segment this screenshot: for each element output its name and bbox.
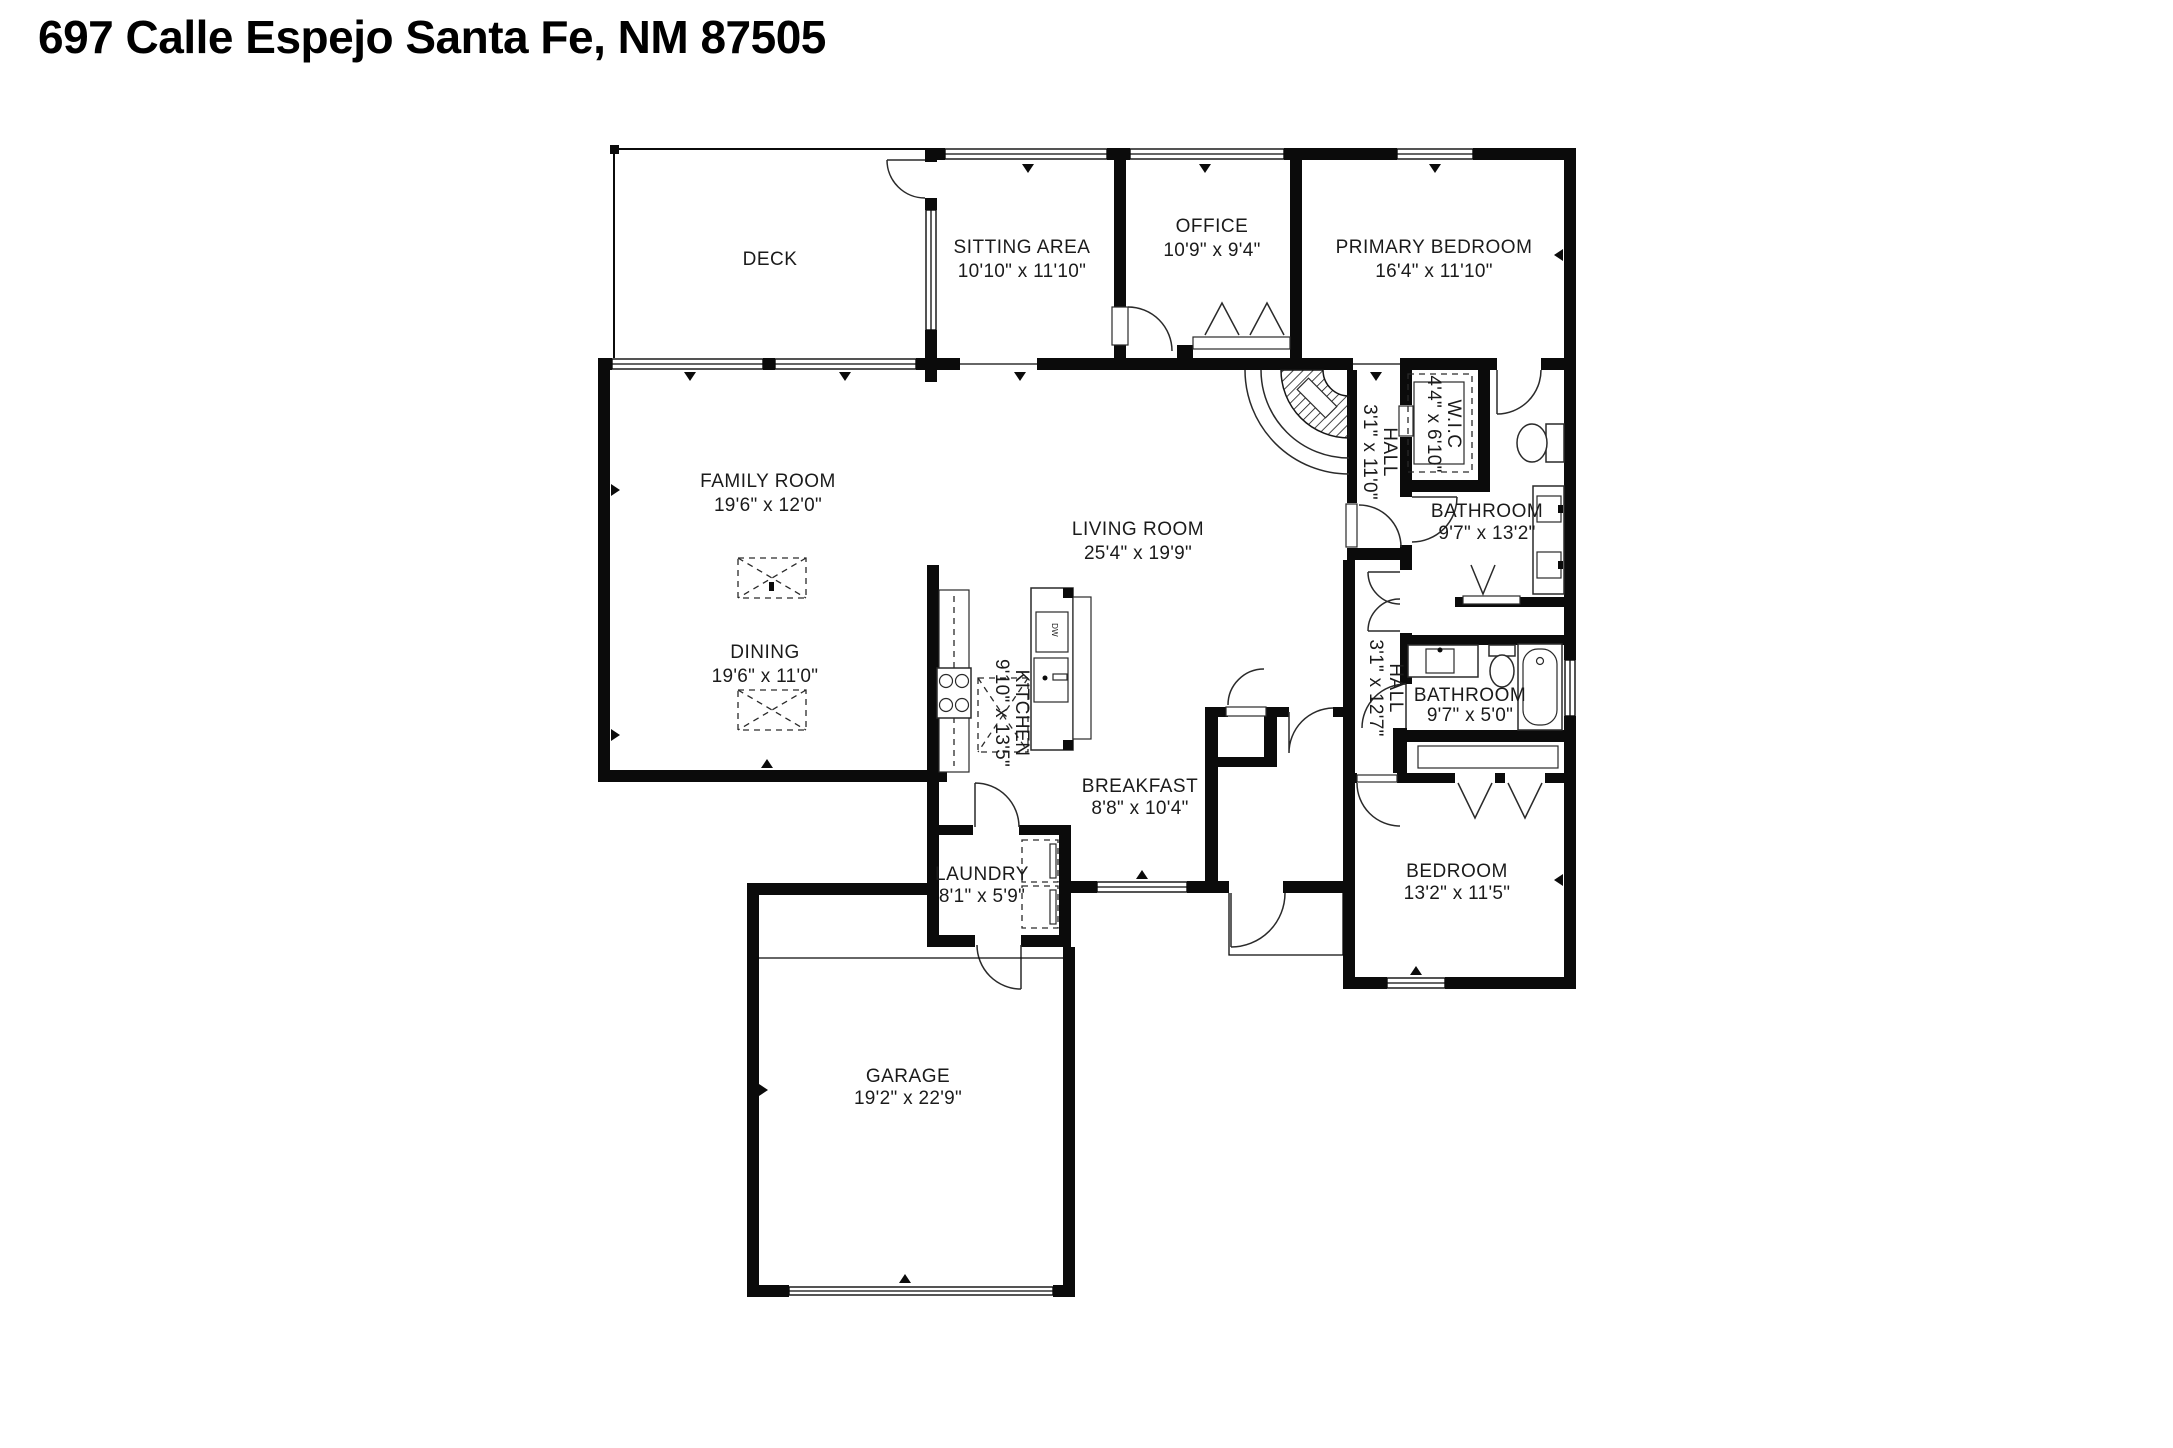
- room-dims-breakfast: 8'8" x 10'4": [1091, 798, 1188, 819]
- room-label-laundry: LAUNDRY: [935, 864, 1029, 885]
- room-dims-primary-bedroom: 16'4" x 11'10": [1375, 261, 1493, 282]
- room-dims-hall-lower: 3'1" x 12'7": [1365, 639, 1386, 736]
- shower-primary-bath: [1463, 565, 1520, 604]
- room-label-bathroom-hall: BATHROOM: [1414, 685, 1526, 706]
- room-label-sitting: SITTING AREA: [954, 237, 1091, 258]
- stove-icon: [937, 668, 971, 718]
- room-label-wic: W.I.C: [1443, 400, 1464, 449]
- room-label-primary-bedroom: PRIMARY BEDROOM: [1336, 237, 1533, 258]
- room-label-family-room: FAMILY ROOM: [700, 471, 836, 492]
- room-dims-garage: 19'2" x 22'9": [854, 1088, 962, 1109]
- room-label-breakfast: BREAKFAST: [1082, 776, 1198, 797]
- room-dims-office: 10'9" x 9'4": [1163, 240, 1260, 261]
- room-dims-wic: 4'4" x 6'10": [1423, 375, 1444, 472]
- room-label-deck: DECK: [743, 249, 798, 270]
- room-dims-kitchen: 9'10" x 13'5": [991, 659, 1012, 767]
- room-dims-sitting: 10'10" x 11'10": [958, 261, 1086, 282]
- room-dims-bathroom-primary: 9'7" x 13'2": [1438, 523, 1535, 544]
- garage-door: [789, 1287, 1053, 1295]
- room-dims-laundry: 8'1" x 5'9": [939, 886, 1025, 907]
- room-label-kitchen: KITCHEN: [1011, 670, 1032, 757]
- room-label-garage: GARAGE: [866, 1066, 950, 1087]
- floor-plan-page: 697 Calle Espejo Santa Fe, NM 87505: [0, 0, 2173, 1448]
- toilet-primary-bath: [1517, 424, 1564, 462]
- room-label-office: OFFICE: [1176, 216, 1249, 237]
- floor-plan: DW DECK SITTING AREA: [0, 0, 2173, 1448]
- room-label-hall-upper: HALL: [1379, 427, 1400, 477]
- vanity-hall-bath: [1408, 645, 1478, 677]
- room-dims-hall-upper: 3'1" x 11'0": [1359, 404, 1380, 500]
- office-closet: [1193, 303, 1290, 349]
- kitchen-island: DW: [1031, 588, 1091, 750]
- dishwasher-label: DW: [1050, 623, 1059, 637]
- room-label-bathroom-primary: BATHROOM: [1431, 501, 1543, 522]
- fireplace-icon: [1245, 370, 1349, 474]
- room-label-hall-lower: HALL: [1385, 663, 1406, 713]
- room-dims-bathroom-hall: 9'7" x 5'0": [1427, 705, 1513, 726]
- room-label-living-room: LIVING ROOM: [1072, 519, 1204, 540]
- room-dims-bedroom: 13'2" x 11'5": [1404, 883, 1511, 904]
- toilet-hall-bath: [1489, 645, 1515, 687]
- room-dims-dining: 19'6" x 11'0": [712, 666, 819, 687]
- room-label-bedroom: BEDROOM: [1406, 861, 1508, 882]
- room-dims-family-room: 19'6" x 12'0": [714, 495, 822, 516]
- room-dims-living-room: 25'4" x 19'9": [1084, 543, 1192, 564]
- interior-walls: [925, 160, 1576, 977]
- room-label-dining: DINING: [730, 642, 800, 663]
